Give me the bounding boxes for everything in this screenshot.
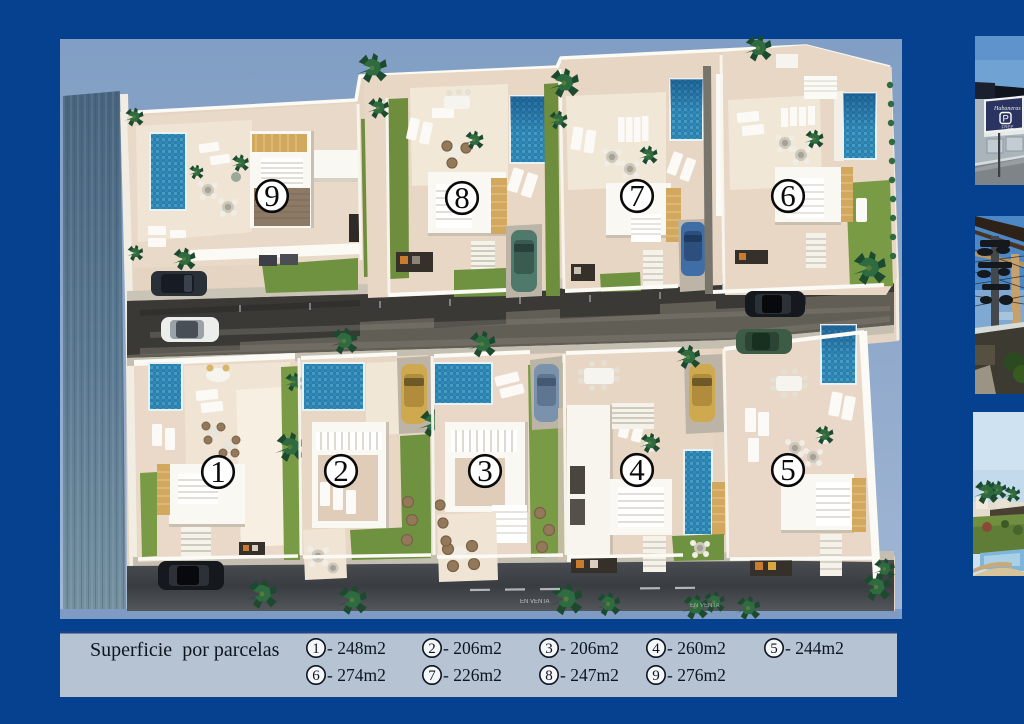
- svg-text:FREE: FREE: [1002, 125, 1014, 130]
- svg-text:6: 6: [312, 668, 320, 684]
- svg-text:2: 2: [428, 641, 436, 657]
- svg-text:4: 4: [652, 641, 660, 657]
- svg-text:9: 9: [264, 178, 280, 213]
- svg-text:5: 5: [770, 641, 778, 657]
- svg-text:6: 6: [780, 178, 796, 213]
- svg-text:- 206m2: - 206m2: [443, 638, 502, 658]
- svg-text:1: 1: [312, 641, 320, 657]
- svg-text:- 206m2: - 206m2: [560, 638, 619, 658]
- svg-text:8: 8: [454, 180, 470, 215]
- svg-text:7: 7: [629, 178, 645, 213]
- svg-text:3: 3: [477, 453, 493, 488]
- svg-text:9: 9: [652, 668, 660, 684]
- svg-text:Superficie por parcelas: Superficie por parcelas: [90, 639, 280, 661]
- svg-text:7: 7: [428, 668, 436, 684]
- svg-text:- 260m2: - 260m2: [667, 638, 726, 658]
- svg-text:- 276m2: - 276m2: [667, 665, 726, 685]
- svg-text:Habaneras: Habaneras: [993, 106, 1021, 112]
- svg-text:4: 4: [629, 452, 645, 487]
- svg-text:5: 5: [780, 452, 796, 487]
- svg-text:- 226m2: - 226m2: [443, 665, 502, 685]
- svg-text:- 274m2: - 274m2: [327, 665, 386, 685]
- svg-text:- 244m2: - 244m2: [785, 638, 844, 658]
- svg-text:8: 8: [545, 668, 553, 684]
- svg-text:3: 3: [545, 641, 553, 657]
- svg-text:P: P: [1003, 114, 1009, 125]
- svg-text:2: 2: [333, 453, 349, 488]
- svg-text:1: 1: [210, 454, 226, 489]
- svg-text:EN VENTA: EN VENTA: [520, 599, 550, 605]
- svg-text:- 248m2: - 248m2: [327, 638, 386, 658]
- svg-text:EN VENTA: EN VENTA: [690, 603, 720, 609]
- svg-text:- 247m2: - 247m2: [560, 665, 619, 685]
